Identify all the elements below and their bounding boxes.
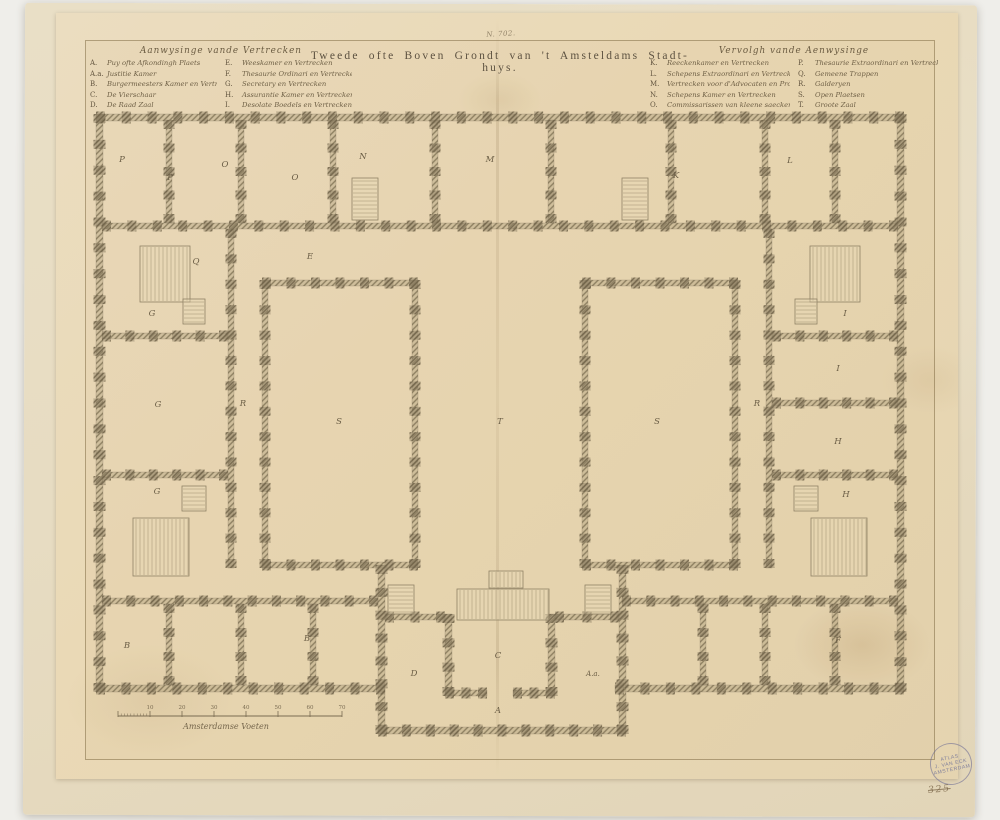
legend-left: Aanwysinge vande Vertrecken A.Puy ofte A… bbox=[90, 46, 352, 111]
center-fold-crease bbox=[496, 16, 499, 776]
legend-entry-text: Thesaurie Ordinari en Vertrecken bbox=[242, 69, 352, 80]
legend-entry-text: De Raad Zaal bbox=[107, 100, 154, 111]
legend-entry: C.De Vierschaar bbox=[90, 90, 217, 101]
legend-entry: N.Schepens Kamer en Vertrecken bbox=[650, 90, 790, 101]
collection-number: 325 bbox=[928, 783, 952, 796]
legend-entry-letter: C. bbox=[90, 90, 103, 101]
legend-right-col1: K.Reeckenkamer en VertreckenL.Schepens E… bbox=[650, 58, 790, 111]
legend-entry-text: Weeskamer en Vertrecken bbox=[242, 58, 332, 69]
legend-left-col2: E.Weeskamer en VertreckenF.Thesaurie Ord… bbox=[225, 58, 352, 111]
legend-right-header: Vervolgh vande Aenwysinge bbox=[650, 46, 938, 56]
legend-left-col1: A.Puy ofte Afkondingh PlaetsA.a.Justitie… bbox=[90, 58, 217, 111]
legend-entry-text: Vertrecken voor d'Advocaten en Procureur… bbox=[667, 79, 790, 90]
legend-entry-letter: H. bbox=[225, 90, 238, 101]
legend-entry: A.Puy ofte Afkondingh Plaets bbox=[90, 58, 217, 69]
legend-entry-text: Commissarissen van kleene saecken en Ver… bbox=[667, 100, 790, 111]
legend-entry-text: Reeckenkamer en Vertrecken bbox=[667, 58, 769, 69]
legend-entry: G.Secretary en Vertrecken bbox=[225, 79, 352, 90]
legend-entry: I.Desolate Boedels en Vertrecken bbox=[225, 100, 352, 111]
plate-mark-border bbox=[85, 40, 935, 760]
legend-entry-text: Groote Zaal bbox=[815, 100, 856, 111]
legend-entry-letter: L. bbox=[650, 69, 663, 80]
legend-entry: H.Assurantie Kamer en Vertrecken bbox=[225, 90, 352, 101]
legend-entry-letter: Q. bbox=[798, 69, 811, 80]
legend-entry-text: Assurantie Kamer en Vertrecken bbox=[242, 90, 352, 101]
legend-entry-text: Burgermeesters Kamer en Vertrecken bbox=[107, 79, 217, 90]
legend-entry: D.De Raad Zaal bbox=[90, 100, 217, 111]
legend-entry-text: Puy ofte Afkondingh Plaets bbox=[107, 58, 200, 69]
legend-entry: M.Vertrecken voor d'Advocaten en Procure… bbox=[650, 79, 790, 90]
legend-entry: F.Thesaurie Ordinari en Vertrecken bbox=[225, 69, 352, 80]
legend-entry-letter: G. bbox=[225, 79, 238, 90]
legend-entry-letter: R. bbox=[798, 79, 811, 90]
legend-entry: Q.Gemeene Trappen bbox=[798, 69, 938, 80]
legend-entry: R.Galderyen bbox=[798, 79, 938, 90]
legend-entry-letter: F. bbox=[225, 69, 238, 80]
legend-entry-letter: A. bbox=[90, 58, 103, 69]
legend-left-header: Aanwysinge vande Vertrecken bbox=[90, 46, 352, 56]
legend-entry-letter: N. bbox=[650, 90, 663, 101]
legend-entry-letter: P. bbox=[798, 58, 811, 69]
legend-entry-text: De Vierschaar bbox=[107, 90, 156, 101]
plan-title: Tweede ofte Boven Grondt van 't Amstelda… bbox=[300, 50, 700, 74]
legend-entry-letter: D. bbox=[90, 100, 103, 111]
legend-entry: S.Open Plaetsen bbox=[798, 90, 938, 101]
legend-entry-text: Gemeene Trappen bbox=[815, 69, 878, 80]
legend-entry: L.Schepens Extraordinari en Vertreck bbox=[650, 69, 790, 80]
legend-entry: A.a.Justitie Kamer bbox=[90, 69, 217, 80]
legend-entry: P.Thesaurie Extraordinari en Vertrecken bbox=[798, 58, 938, 69]
legend-entry-text: Thesaurie Extraordinari en Vertrecken bbox=[815, 58, 938, 69]
legend-entry: O.Commissarissen van kleene saecken en V… bbox=[650, 100, 790, 111]
legend-entry-letter: I. bbox=[225, 100, 238, 111]
legend-entry: E.Weeskamer en Vertrecken bbox=[225, 58, 352, 69]
legend-entry-text: Secretary en Vertrecken bbox=[242, 79, 326, 90]
legend-entry-text: Galderyen bbox=[815, 79, 851, 90]
legend-entry-text: Desolate Boedels en Vertrecken bbox=[242, 100, 352, 111]
legend-right: Vervolgh vande Aenwysinge K.Reeckenkamer… bbox=[650, 46, 938, 111]
legend-entry-letter: B. bbox=[90, 79, 103, 90]
legend-entry-letter: A.a. bbox=[90, 69, 103, 80]
legend-entry-letter: O. bbox=[650, 100, 663, 111]
legend-entry-letter: S. bbox=[798, 90, 811, 101]
legend-entry-text: Schepens Extraordinari en Vertreck bbox=[667, 69, 790, 80]
legend-entry: K.Reeckenkamer en Vertrecken bbox=[650, 58, 790, 69]
legend-entry-text: Schepens Kamer en Vertrecken bbox=[667, 90, 776, 101]
legend-entry-letter: E. bbox=[225, 58, 238, 69]
legend-entry-text: Open Plaetsen bbox=[815, 90, 865, 101]
legend-entry: T.Groote Zaal bbox=[798, 100, 938, 111]
legend-entry-letter: M. bbox=[650, 79, 663, 90]
legend-entry-text: Justitie Kamer bbox=[107, 69, 156, 80]
legend-right-col2: P.Thesaurie Extraordinari en VertreckenQ… bbox=[798, 58, 938, 111]
legend-entry-letter: K. bbox=[650, 58, 663, 69]
legend-entry: B.Burgermeesters Kamer en Vertrecken bbox=[90, 79, 217, 90]
legend-entry-letter: T. bbox=[798, 100, 811, 111]
